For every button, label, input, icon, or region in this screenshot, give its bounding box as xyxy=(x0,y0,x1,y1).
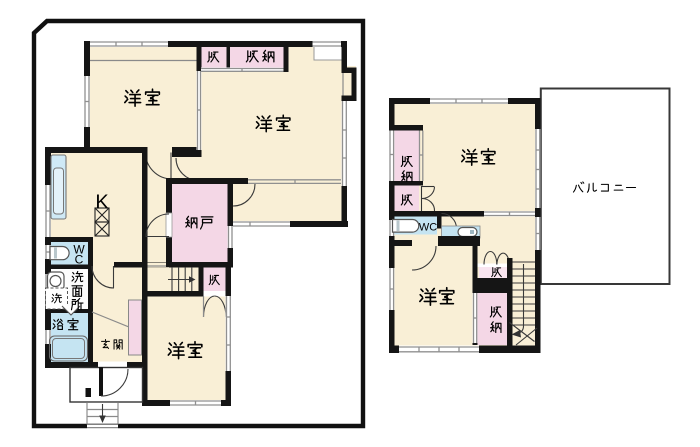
svg-text:C: C xyxy=(75,253,84,267)
svg-text:K: K xyxy=(95,192,109,214)
svg-text:WC: WC xyxy=(419,222,437,234)
